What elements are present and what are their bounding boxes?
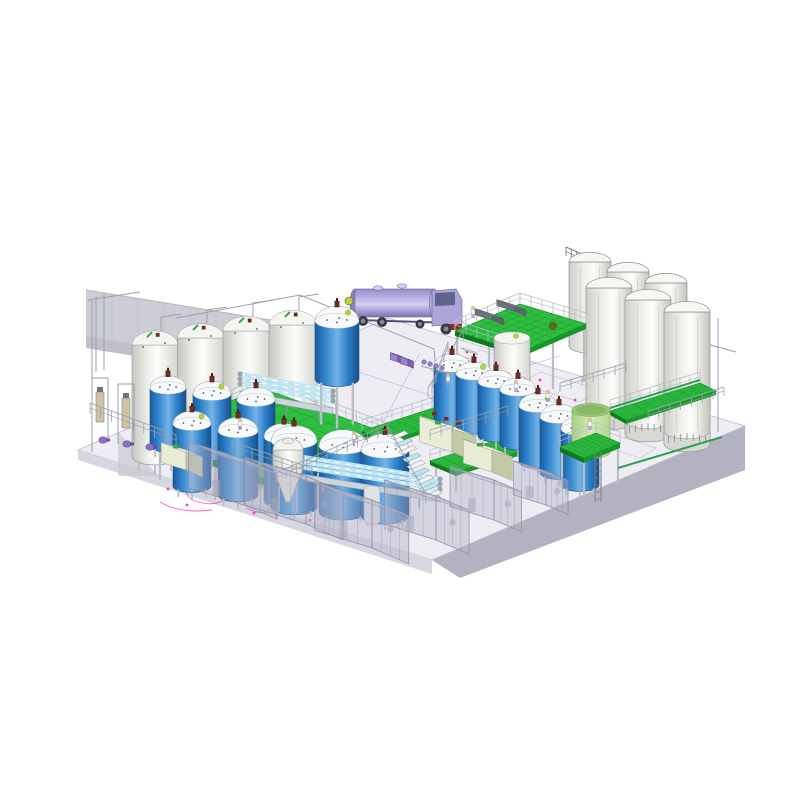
valve-manifold xyxy=(432,412,437,416)
valve-manifold xyxy=(444,417,449,421)
valve-ball xyxy=(345,297,353,305)
worker-figure xyxy=(471,306,475,318)
plant-scene-canvas xyxy=(0,0,800,800)
plant-3d-render xyxy=(0,0,800,800)
storage-silo-front xyxy=(664,301,710,451)
blue-mixing-tank xyxy=(315,298,359,428)
valve-ball xyxy=(549,322,557,330)
